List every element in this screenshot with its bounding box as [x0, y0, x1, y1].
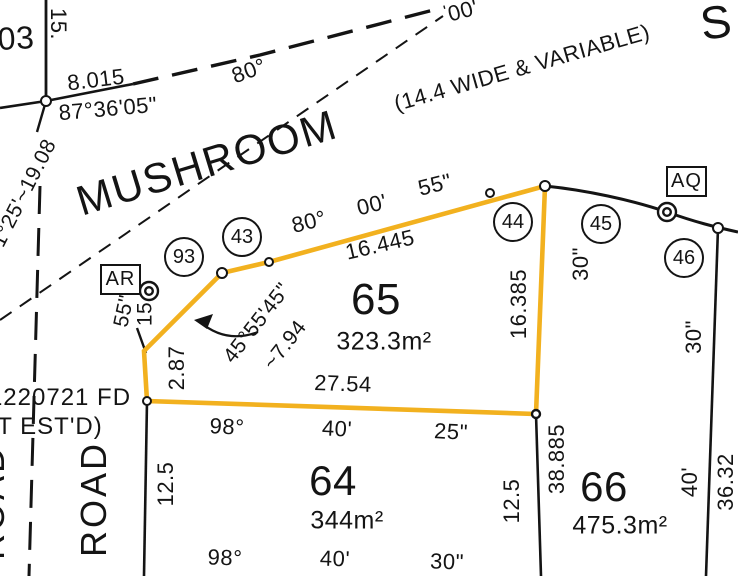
dimension-125-west: 12.5: [155, 462, 177, 507]
road-centerline-dashed: [133, 7, 445, 84]
bearing-bot-30: 30": [430, 550, 465, 573]
dimension-38885: 38.885: [546, 424, 568, 494]
corner-marker-44-label: 44: [502, 211, 524, 234]
road-line-west: [0, 101, 46, 108]
dimension-125-east: 12.5: [501, 479, 523, 524]
survey-plan-map: MUSHROOM (14.4 WIDE & VARIABLE) S ROAD R…: [0, 0, 738, 576]
boundary-node: [540, 181, 550, 191]
boundary-node: [486, 189, 494, 197]
boundary-node: [143, 397, 151, 405]
reference-mark-AR-label: AR: [100, 264, 141, 295]
note-found-mark: 1220721 FD: [0, 386, 131, 410]
corner-marker-46-label: 46: [673, 247, 695, 270]
reference-mark-AQ-label: AQ: [666, 166, 707, 197]
lot65-area: 323.3m²: [336, 330, 431, 355]
lot66-number[interactable]: 66: [580, 466, 628, 508]
note-not-estd: T EST'D): [0, 415, 103, 439]
boundary-node: [532, 410, 540, 418]
bearing-mid-40: 40': [321, 417, 352, 441]
dimension-287: 2.87: [166, 346, 188, 391]
dimension-2754: 27.54: [314, 372, 372, 396]
ar-text: AR: [106, 268, 136, 291]
road-centerline-dashed-vertical: [29, 186, 40, 576]
boundary-node: [41, 96, 51, 106]
bearing-leader-arrowhead: [194, 314, 213, 329]
corner-marker-44: 44: [493, 202, 533, 242]
lot66-east-boundary: [706, 228, 718, 576]
corner-marker-46: 46: [664, 238, 704, 278]
corner-marker-43-label: 43: [231, 226, 253, 249]
lot64-area: 344m²: [310, 509, 383, 534]
dimension-15-top: 15.: [47, 8, 69, 40]
lot66-area: 475.3m²: [572, 514, 667, 539]
lot65-number[interactable]: 65: [351, 278, 401, 322]
lot-number-partial-03: 03: [0, 21, 35, 55]
boundary-node: [265, 258, 273, 266]
dimension-3632: 36.32: [715, 453, 737, 511]
street-name-road: ROAD: [76, 441, 112, 557]
bearing-mid-98: 98°: [209, 415, 245, 439]
aq-text: AQ: [671, 170, 702, 193]
dimension-15-ar: 15: [135, 302, 156, 326]
street-name-road-clipped: ROAD: [0, 444, 10, 560]
boundary-node: [217, 268, 227, 278]
survey-mark-AQ: [658, 203, 676, 221]
street-name-partial-s: S: [697, 0, 734, 47]
road-curve-north-east: [545, 186, 738, 232]
bearing-east-30-right: 30": [683, 320, 705, 354]
lot64-66-boundary: [536, 414, 541, 576]
corner-marker-43: 43: [222, 217, 262, 257]
lot64-west-boundary: [144, 401, 147, 576]
bearing-bot-98: 98°: [207, 546, 243, 569]
bearing-east-40: 40': [679, 467, 701, 497]
bearing-mid-25: 25": [434, 420, 469, 444]
boundary-node: [713, 223, 723, 233]
survey-mark-AR: [140, 282, 158, 300]
corner-marker-93: 93: [164, 237, 204, 277]
corner-marker-93-label: 93: [173, 246, 195, 269]
dimension-16385: 16.385: [508, 269, 530, 339]
bearing-east-30-mid: 30": [570, 247, 592, 281]
corner-marker-45: 45: [581, 204, 621, 244]
corner-marker-45-label: 45: [590, 213, 612, 236]
bearing-bot-40: 40': [320, 547, 351, 570]
lot64-number[interactable]: 64: [309, 460, 357, 502]
